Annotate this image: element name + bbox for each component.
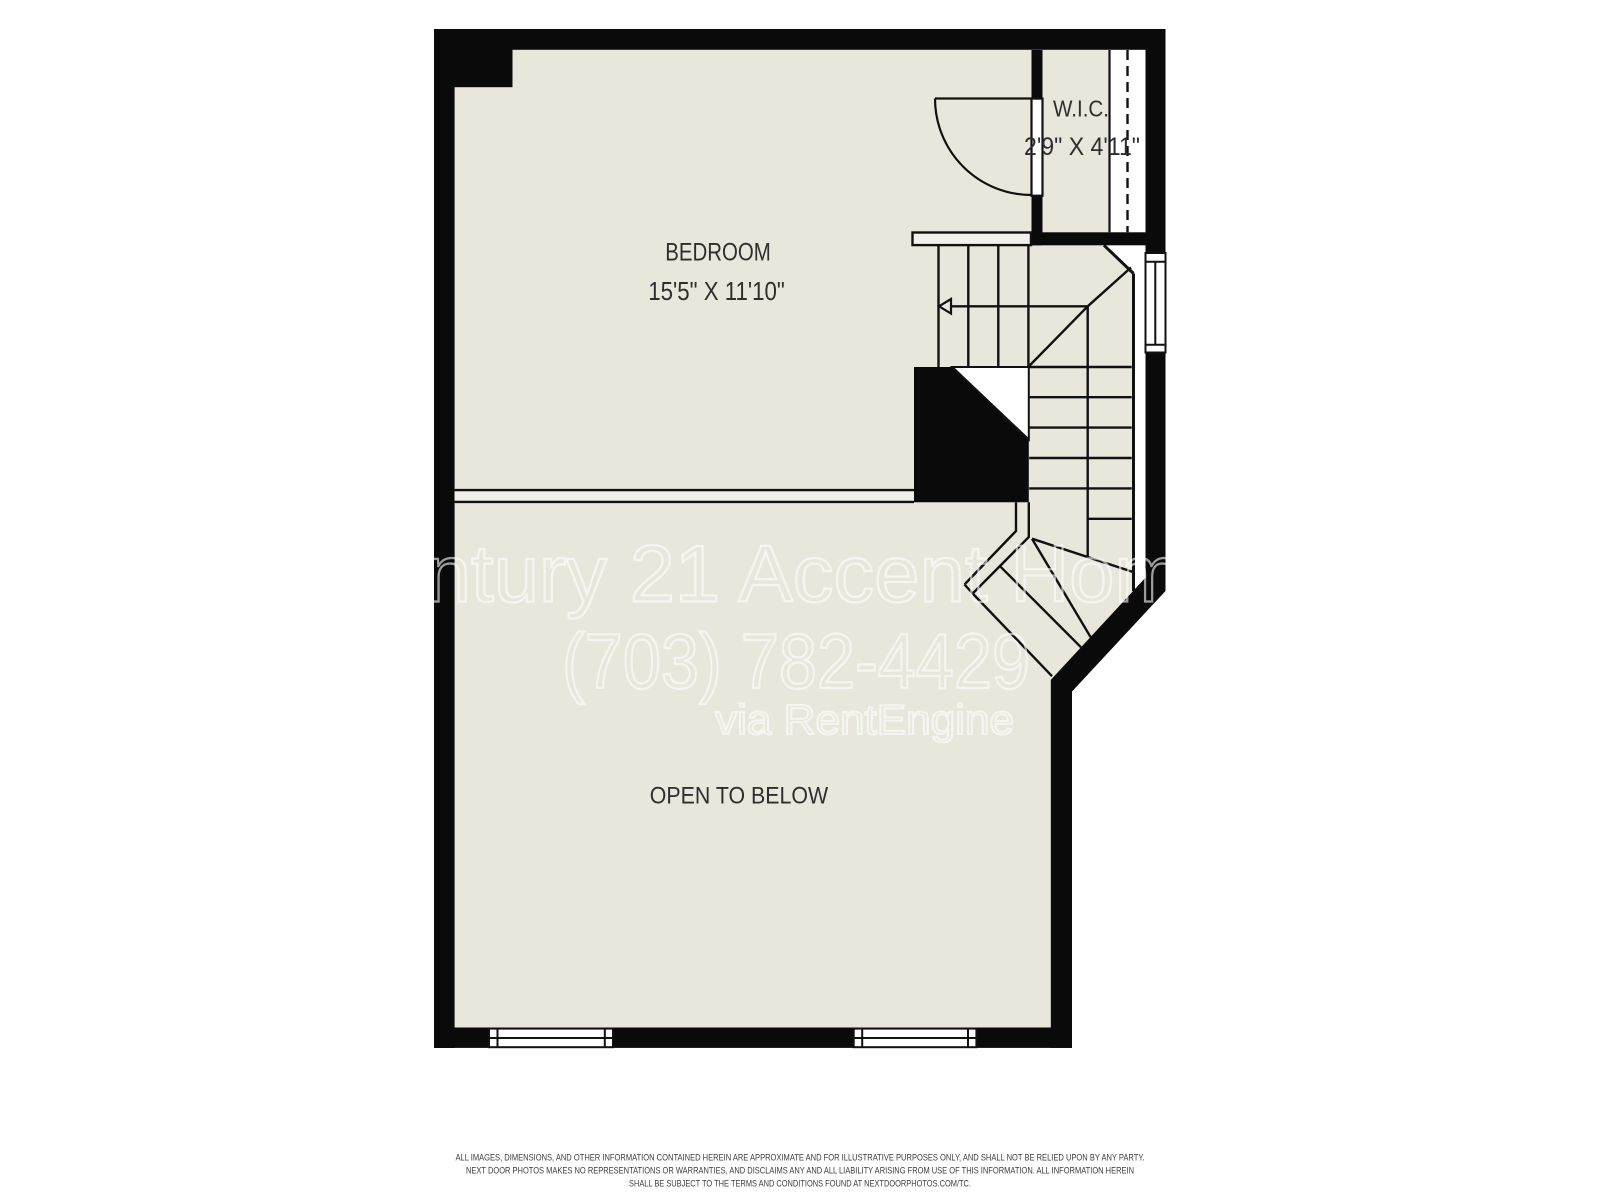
svg-text:2'9" X 4'11": 2'9" X 4'11" xyxy=(1024,133,1140,161)
svg-text:W.I.C.: W.I.C. xyxy=(1053,95,1109,121)
svg-text:Century 21 Accent Homes: Century 21 Accent Homes xyxy=(322,529,1269,619)
svg-text:ALL IMAGES, DIMENSIONS, AND OT: ALL IMAGES, DIMENSIONS, AND OTHER INFORM… xyxy=(456,1153,1145,1164)
svg-text:BEDROOM: BEDROOM xyxy=(665,239,771,267)
svg-text:NEXT DOOR PHOTOS MAKES NO REPR: NEXT DOOR PHOTOS MAKES NO REPRESENTATION… xyxy=(466,1166,1134,1177)
svg-text:15'5" X 11'10": 15'5" X 11'10" xyxy=(648,276,785,306)
svg-text:(703) 782-4429: (703) 782-4429 xyxy=(562,617,1030,705)
svg-text:via RentEngine: via RentEngine xyxy=(715,696,1014,743)
svg-text:SHALL BE SUBJECT TO THE TERMS: SHALL BE SUBJECT TO THE TERMS AND CONDIT… xyxy=(629,1179,971,1190)
svg-text:OPEN TO BELOW: OPEN TO BELOW xyxy=(650,783,829,810)
